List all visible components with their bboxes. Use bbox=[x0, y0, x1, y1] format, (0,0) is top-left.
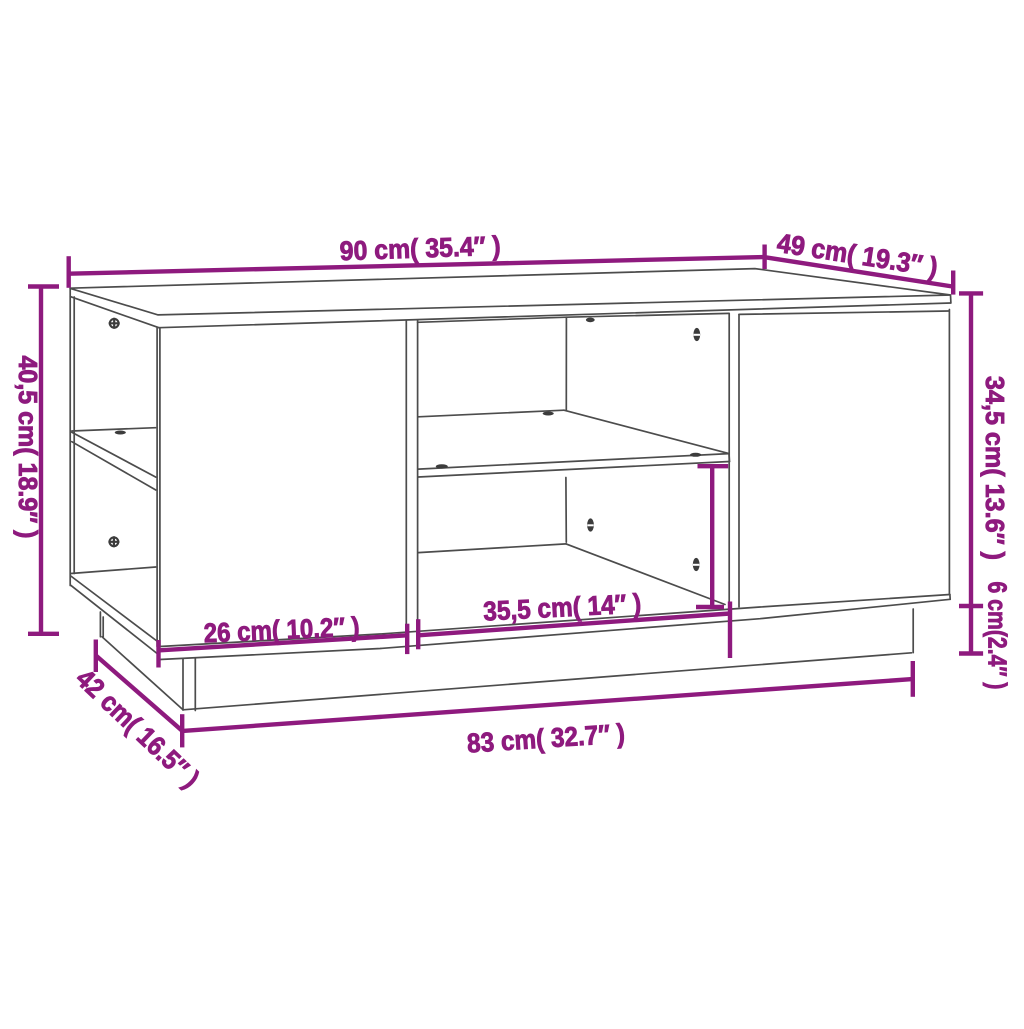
svg-text:6 cm(2.4″ ): 6 cm(2.4″ ) bbox=[983, 582, 1013, 690]
svg-text:34,5 cm( 13.6″ ): 34,5 cm( 13.6″ ) bbox=[980, 376, 1010, 560]
svg-text:90 cm( 35.4″ ): 90 cm( 35.4″ ) bbox=[339, 231, 501, 267]
svg-text:40,5 cm( 18.9″ ): 40,5 cm( 18.9″ ) bbox=[13, 356, 43, 539]
